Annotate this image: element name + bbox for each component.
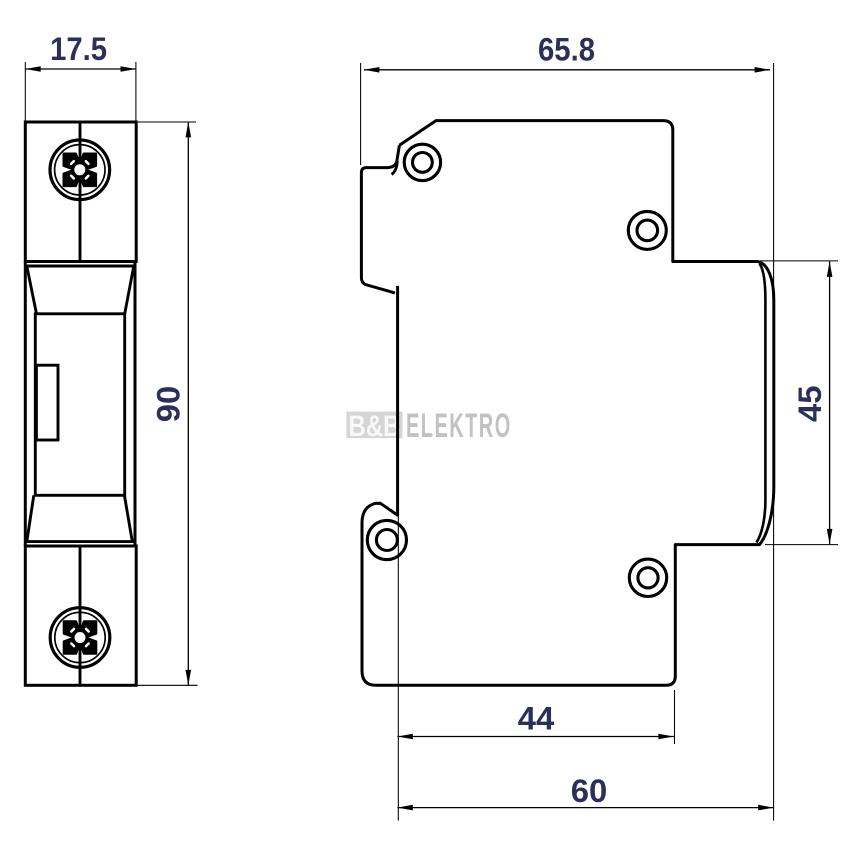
svg-text:ELEKTRO: ELEKTRO	[406, 405, 512, 444]
svg-text:65.8: 65.8	[538, 30, 595, 67]
svg-text:44: 44	[518, 699, 555, 736]
svg-text:60: 60	[571, 772, 607, 809]
svg-text:B&B: B&B	[349, 410, 401, 443]
svg-text:90: 90	[150, 386, 187, 422]
svg-text:17.5: 17.5	[50, 30, 107, 67]
svg-text:45: 45	[791, 386, 828, 422]
